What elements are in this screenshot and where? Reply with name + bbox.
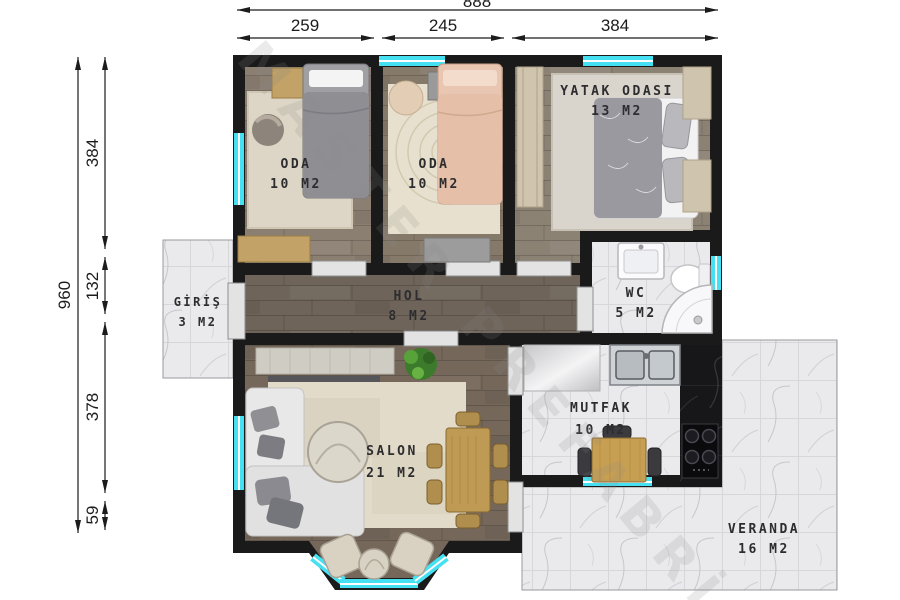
- room-label-oda-2: ODA: [419, 157, 450, 172]
- room-area-yatak-odasi: 13 M2: [591, 104, 643, 119]
- room-area-wc: 5 M2: [615, 306, 656, 321]
- room-area-salon: 21 M2: [366, 466, 418, 481]
- armchair: [389, 81, 423, 115]
- door-yatak: [517, 261, 571, 276]
- room-label-salon: SALON: [366, 444, 418, 459]
- room-label-wc: WC: [626, 286, 647, 301]
- room-label-yatak-odasi: YATAK ODASI: [560, 84, 674, 99]
- wardrobe: [517, 67, 543, 207]
- dim-left-segment-4: 59: [83, 506, 102, 525]
- coffee-table: [308, 422, 368, 482]
- stove: [682, 424, 718, 478]
- dim-left-total: 960: [55, 281, 74, 309]
- floor-plan-canvas: ODA 10 M2 ODA 10 M2 YATAK ODASI 13 M2 Gİ…: [0, 0, 900, 600]
- room-label-veranda: VERANDA: [728, 522, 800, 537]
- room-area-hol: 8 M2: [388, 309, 429, 324]
- dim-top-segment-1: 259: [291, 16, 319, 35]
- wardrobe: [683, 67, 711, 119]
- door-veranda: [508, 482, 523, 532]
- tv-console: [256, 348, 394, 374]
- door-oda-1: [312, 261, 366, 276]
- room-area-oda-2: 10 M2: [408, 177, 460, 192]
- dresser: [238, 236, 310, 262]
- kitchen-sink: [610, 345, 680, 385]
- room-area-giris: 3 M2: [179, 315, 218, 329]
- side-table: [359, 549, 389, 579]
- door-wc: [577, 287, 593, 331]
- dim-left-segment-1: 384: [83, 139, 102, 167]
- dim-top-total: 888: [463, 0, 491, 11]
- dim-left-segment-3: 378: [83, 393, 102, 421]
- dim-top-segment-2: 245: [429, 16, 457, 35]
- dim-left-segment-2: 132: [83, 272, 102, 300]
- room-label-giris: GİRİŞ: [174, 294, 223, 309]
- dim-top-segment-3: 384: [601, 16, 629, 35]
- entrance-pad: [163, 240, 233, 378]
- tv: [268, 376, 380, 382]
- room-area-veranda: 16 M2: [738, 542, 790, 557]
- wardrobe: [683, 160, 711, 212]
- door-entrance: [228, 283, 245, 339]
- floor-plan: ODA 10 M2 ODA 10 M2 YATAK ODASI 13 M2 Gİ…: [0, 0, 900, 600]
- room-area-oda-1: 10 M2: [270, 177, 322, 192]
